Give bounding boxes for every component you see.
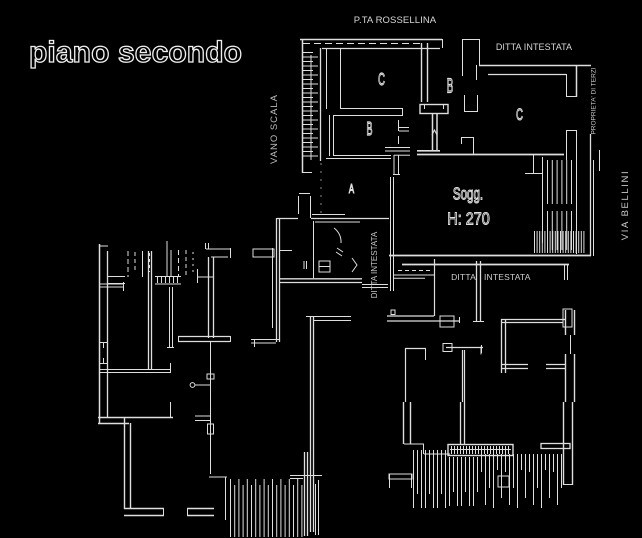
- svg-text:B: B: [367, 120, 373, 140]
- svg-text:VIA BELLINI: VIA BELLINI: [620, 170, 631, 240]
- svg-text:DITTA INTESTATA: DITTA INTESTATA: [370, 231, 379, 298]
- svg-text:B: B: [447, 76, 454, 98]
- svg-text:P.TA ROSSELLINA: P.TA ROSSELLINA: [354, 15, 437, 26]
- svg-text:C: C: [516, 105, 523, 124]
- svg-text:piano secondo: piano secondo: [29, 36, 245, 69]
- svg-text:C: C: [378, 70, 385, 90]
- svg-text:DITTA INTESTATA: DITTA INTESTATA: [496, 42, 572, 52]
- svg-text:DITTA: DITTA: [451, 272, 476, 282]
- svg-text:INTESTATA: INTESTATA: [484, 272, 531, 282]
- svg-text:H: 270: H: 270: [447, 209, 489, 229]
- svg-text:VANO SCALA: VANO SCALA: [269, 94, 280, 164]
- svg-text:PROPRIETA' DI TERZI: PROPRIETA' DI TERZI: [591, 67, 598, 134]
- svg-text:A: A: [349, 182, 355, 197]
- svg-text:Sogg.: Sogg.: [453, 185, 483, 204]
